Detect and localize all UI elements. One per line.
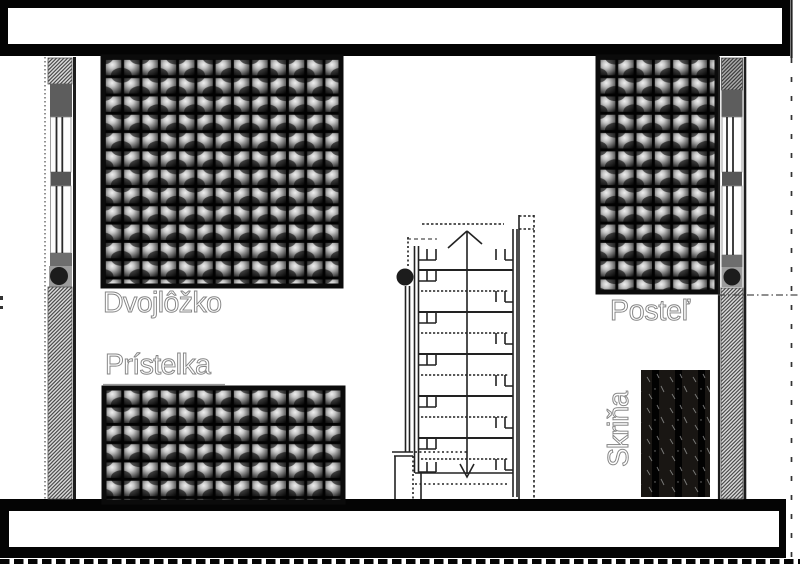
svg-text:Dvojlôžko: Dvojlôžko — [103, 287, 222, 319]
svg-text:Prístelka: Prístelka — [105, 349, 211, 381]
svg-text:Posteľ: Posteľ — [610, 295, 691, 327]
svg-text:Skriňa: Skriňa — [603, 391, 635, 467]
